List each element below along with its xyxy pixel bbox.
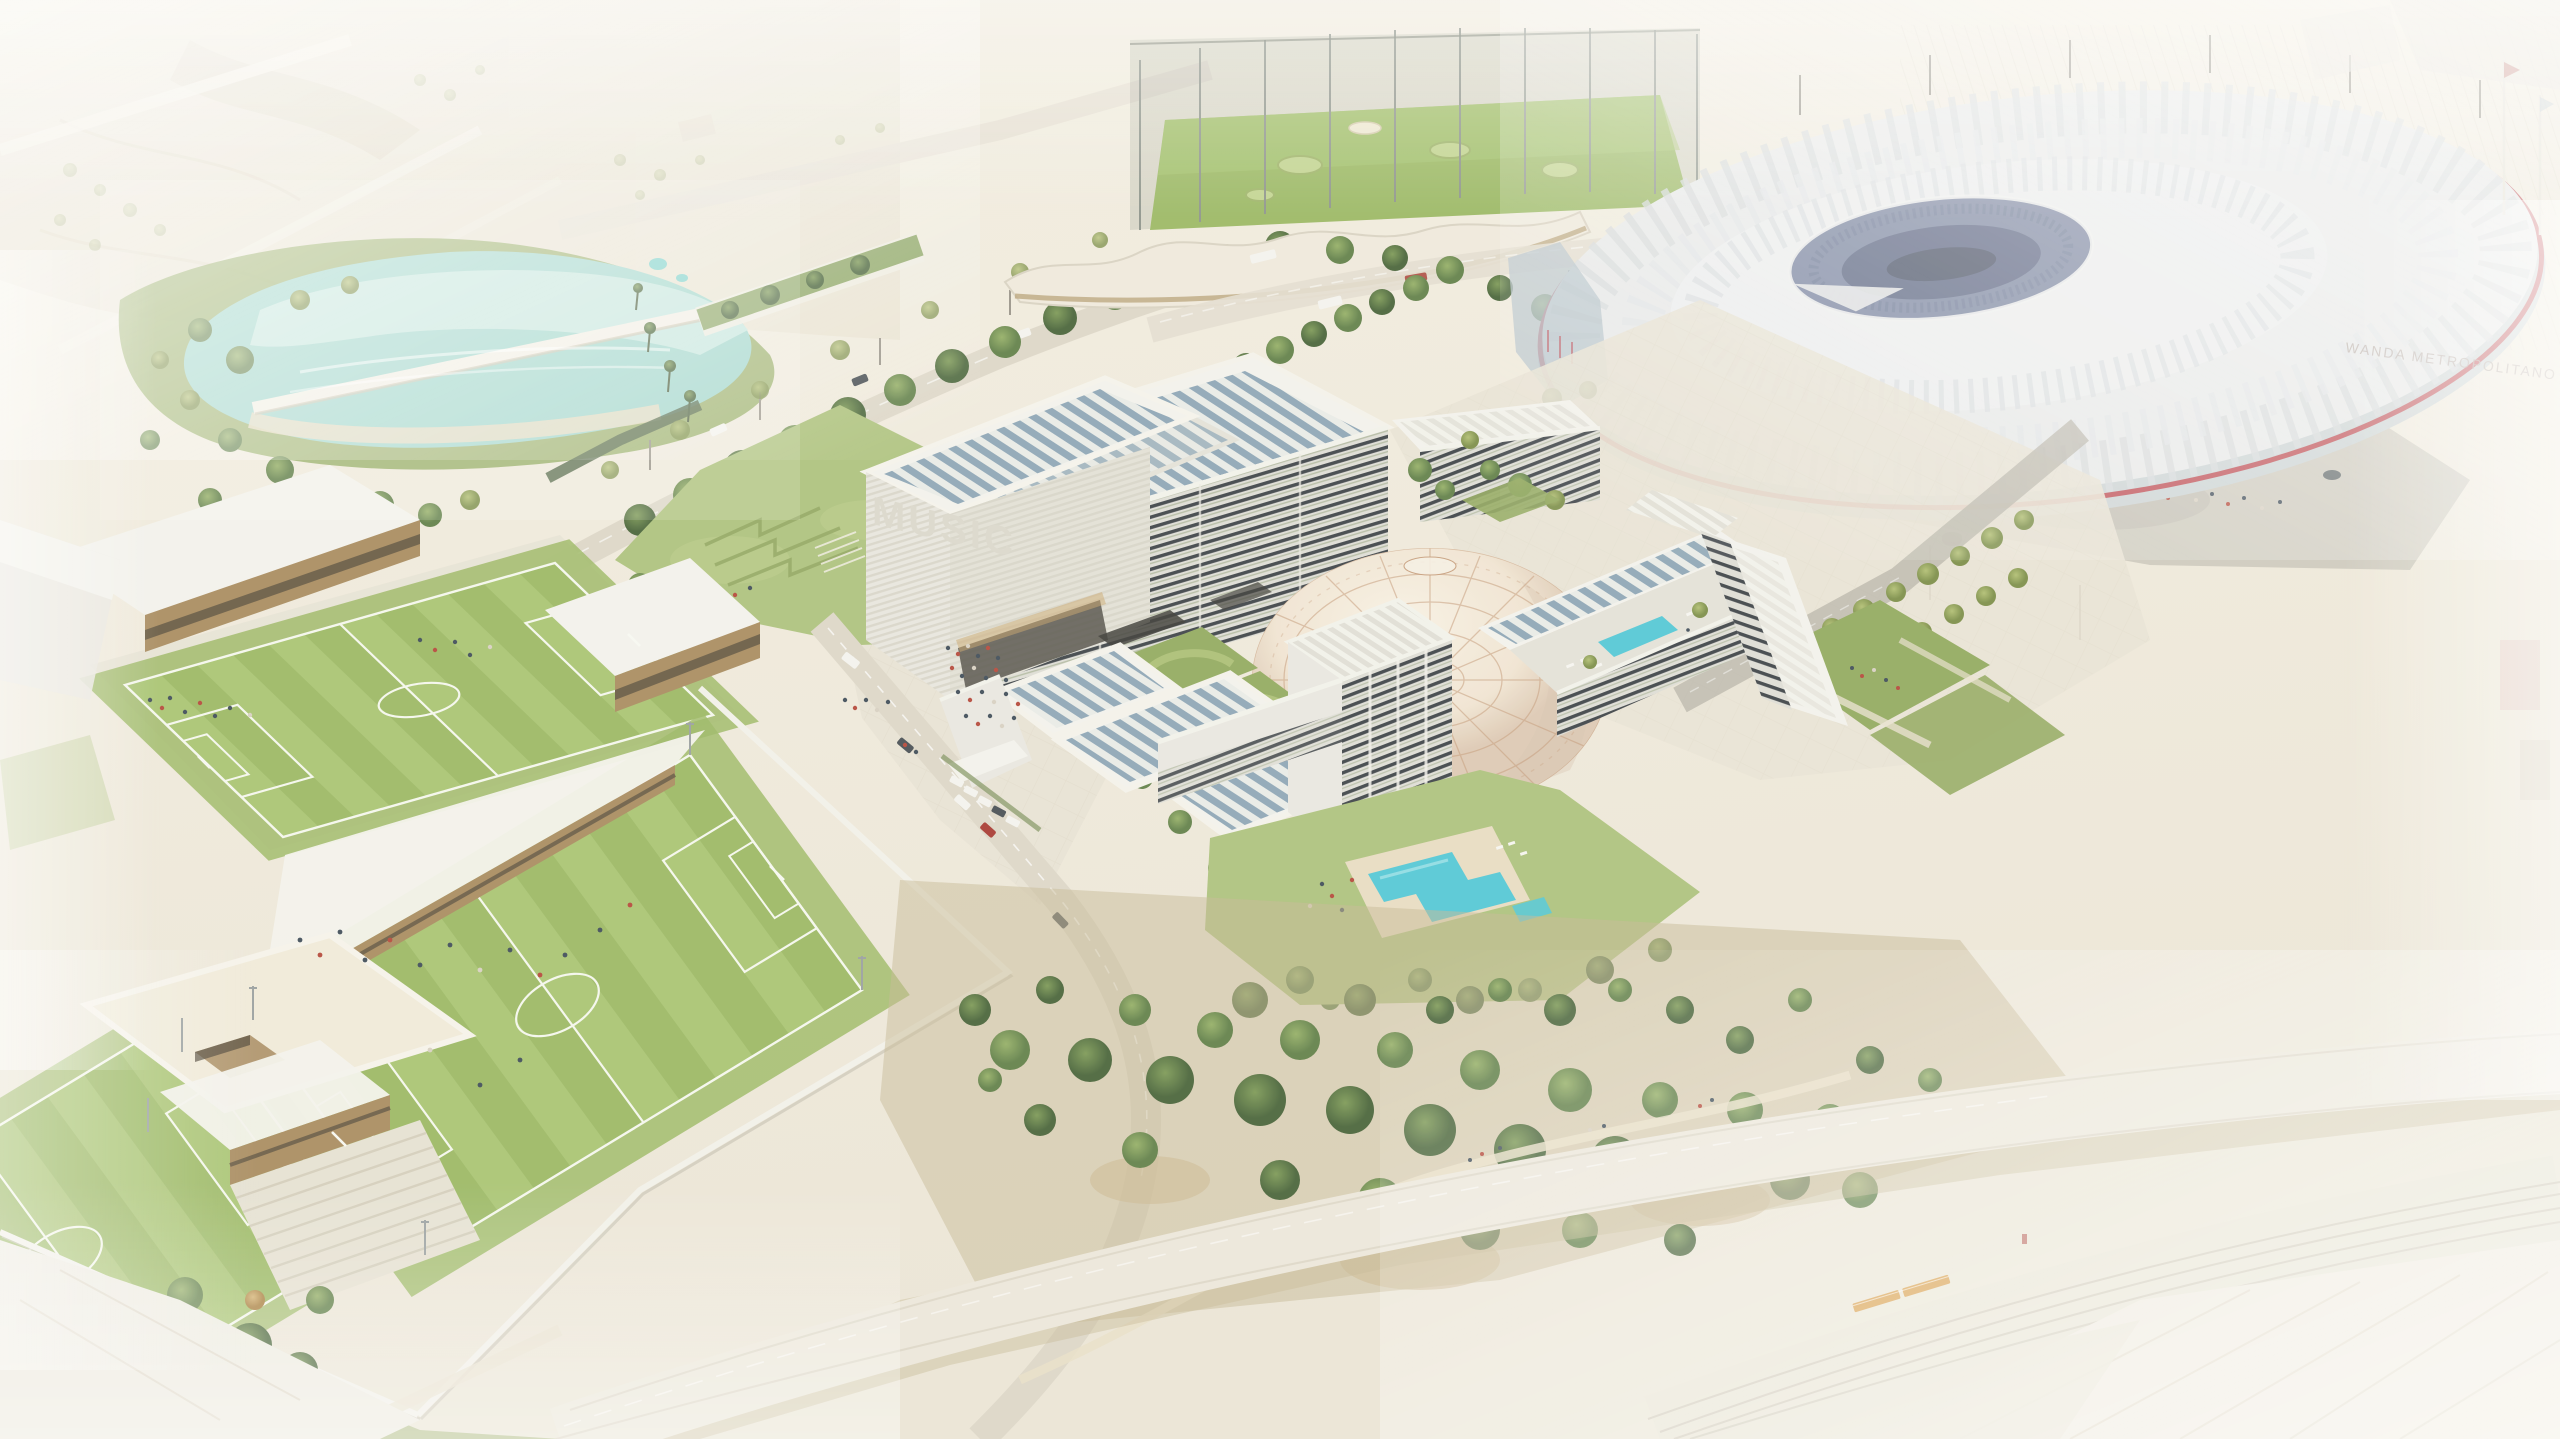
aerial-rendering-canvas: WANDA METROPOLITANO <box>0 0 2560 1439</box>
masterplan-rendering: WANDA METROPOLITANO <box>0 0 2560 1439</box>
fade-overlays <box>0 0 2560 1439</box>
